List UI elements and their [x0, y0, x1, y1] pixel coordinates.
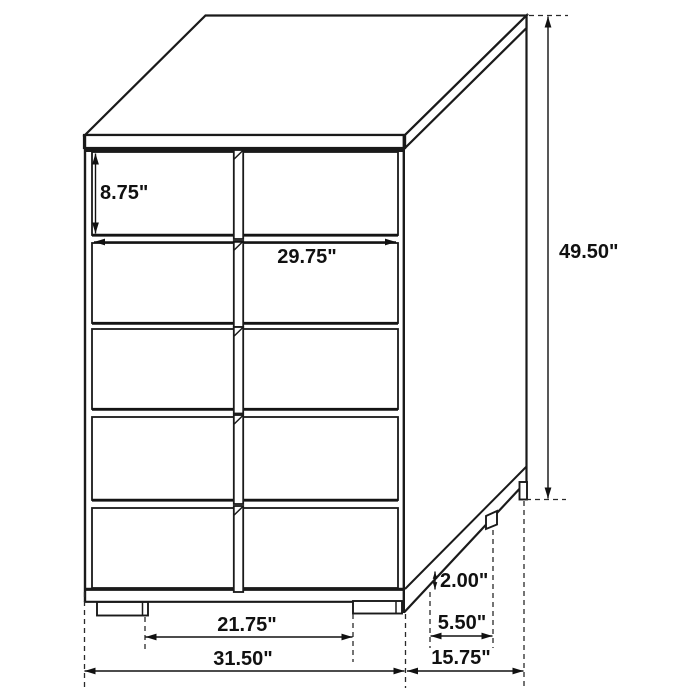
- drawer-handle-2: [234, 241, 243, 327]
- drawer-row-5: [92, 508, 398, 588]
- side-leg-back: [520, 482, 528, 500]
- drawer-row-4: [92, 417, 398, 500]
- chest-top-front-edge: [84, 135, 405, 148]
- dim-label-overall-depth: 15.75": [431, 647, 491, 669]
- drawer-row-3: [92, 329, 398, 409]
- front-leg-left: [97, 602, 148, 616]
- dim-label-leg-height: 2.00": [440, 570, 488, 592]
- dim-label-drawer-width: 29.75": [277, 246, 337, 268]
- drawer-handles: [234, 150, 243, 592]
- drawer-handle-4: [234, 415, 243, 504]
- dim-label-side-leg-gap: 5.50": [438, 612, 486, 634]
- diagram-canvas: 8.75" 29.75" 49.50" 2.00" 5.50" 21.75" 3…: [0, 0, 700, 700]
- chest-dimension-diagram: 8.75" 29.75" 49.50" 2.00" 5.50" 21.75" 3…: [0, 0, 700, 700]
- dim-label-drawer-height: 8.75": [100, 182, 148, 204]
- drawer-handle-3: [234, 327, 243, 414]
- drawer-handle-1: [234, 150, 243, 239]
- front-leg-right: [353, 601, 402, 614]
- drawer-row-2: [92, 243, 398, 323]
- drawer-handle-5: [234, 506, 243, 592]
- dim-label-overall-height: 49.50": [559, 241, 619, 263]
- dim-label-overall-width: 31.50": [213, 648, 273, 670]
- chest-body: [84, 16, 527, 616]
- dim-label-front-leg-span: 21.75": [217, 614, 277, 636]
